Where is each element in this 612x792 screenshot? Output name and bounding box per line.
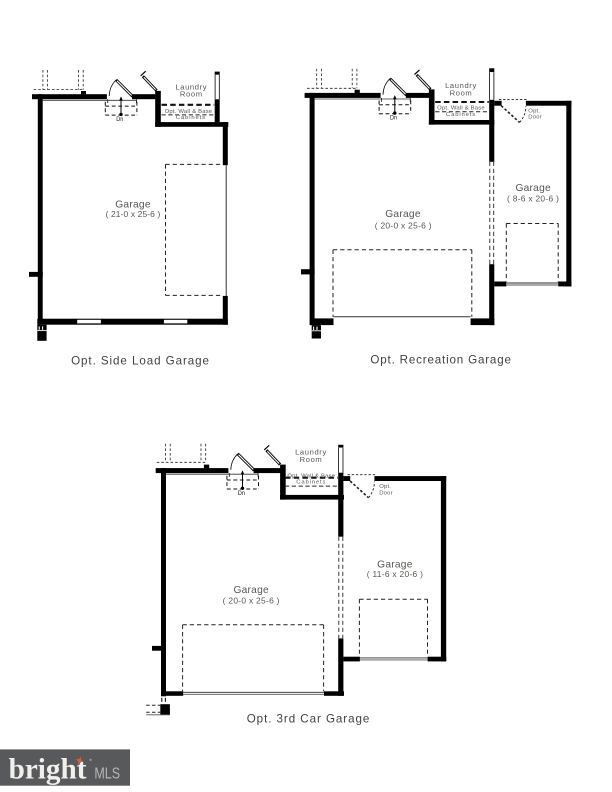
svg-text:Room: Room: [180, 90, 203, 99]
svg-text:Room: Room: [300, 455, 323, 464]
svg-text:Opt. Wall & Base: Opt. Wall & Base: [165, 109, 213, 115]
svg-text:Garage: Garage: [233, 585, 269, 596]
svg-text:Opt. 3rd Car Garage: Opt. 3rd Car Garage: [247, 713, 371, 726]
svg-text:Opt. Side Load Garage: Opt. Side Load Garage: [71, 354, 210, 367]
svg-text:Opt. Recreation Garage: Opt. Recreation Garage: [370, 354, 511, 367]
svg-text:Dn: Dn: [390, 115, 398, 122]
svg-text:( 8-6 x 20-6 ): ( 8-6 x 20-6 ): [507, 194, 559, 204]
svg-text:( 20-0 x 25-6 ): ( 20-0 x 25-6 ): [375, 220, 432, 230]
svg-text:Opt. Wall & Base: Opt. Wall & Base: [437, 106, 485, 112]
svg-text:Opt.: Opt.: [379, 484, 391, 490]
svg-text:Cabinets: Cabinets: [296, 479, 326, 485]
svg-text:Dn: Dn: [116, 116, 124, 123]
svg-text:( 20-0 x 25-6 ): ( 20-0 x 25-6 ): [223, 595, 280, 605]
svg-text:Door: Door: [379, 490, 393, 496]
svg-text:Cabinets: Cabinets: [446, 112, 476, 118]
svg-text:Opt.: Opt.: [528, 108, 540, 114]
svg-text:MLS: MLS: [94, 765, 120, 782]
svg-text:Room: Room: [450, 88, 473, 97]
svg-text:Door: Door: [528, 115, 542, 121]
svg-text:( 11-6 x 20-6 ): ( 11-6 x 20-6 ): [367, 569, 423, 579]
svg-text:Dn: Dn: [238, 490, 246, 497]
svg-text:Garage: Garage: [515, 183, 551, 194]
svg-text:Cabinets: Cabinets: [176, 115, 206, 121]
svg-text:( 21-0 x 25-6 ): ( 21-0 x 25-6 ): [106, 209, 161, 219]
svg-text:Garage: Garage: [385, 209, 421, 220]
svg-text:bright: bright: [9, 753, 87, 785]
